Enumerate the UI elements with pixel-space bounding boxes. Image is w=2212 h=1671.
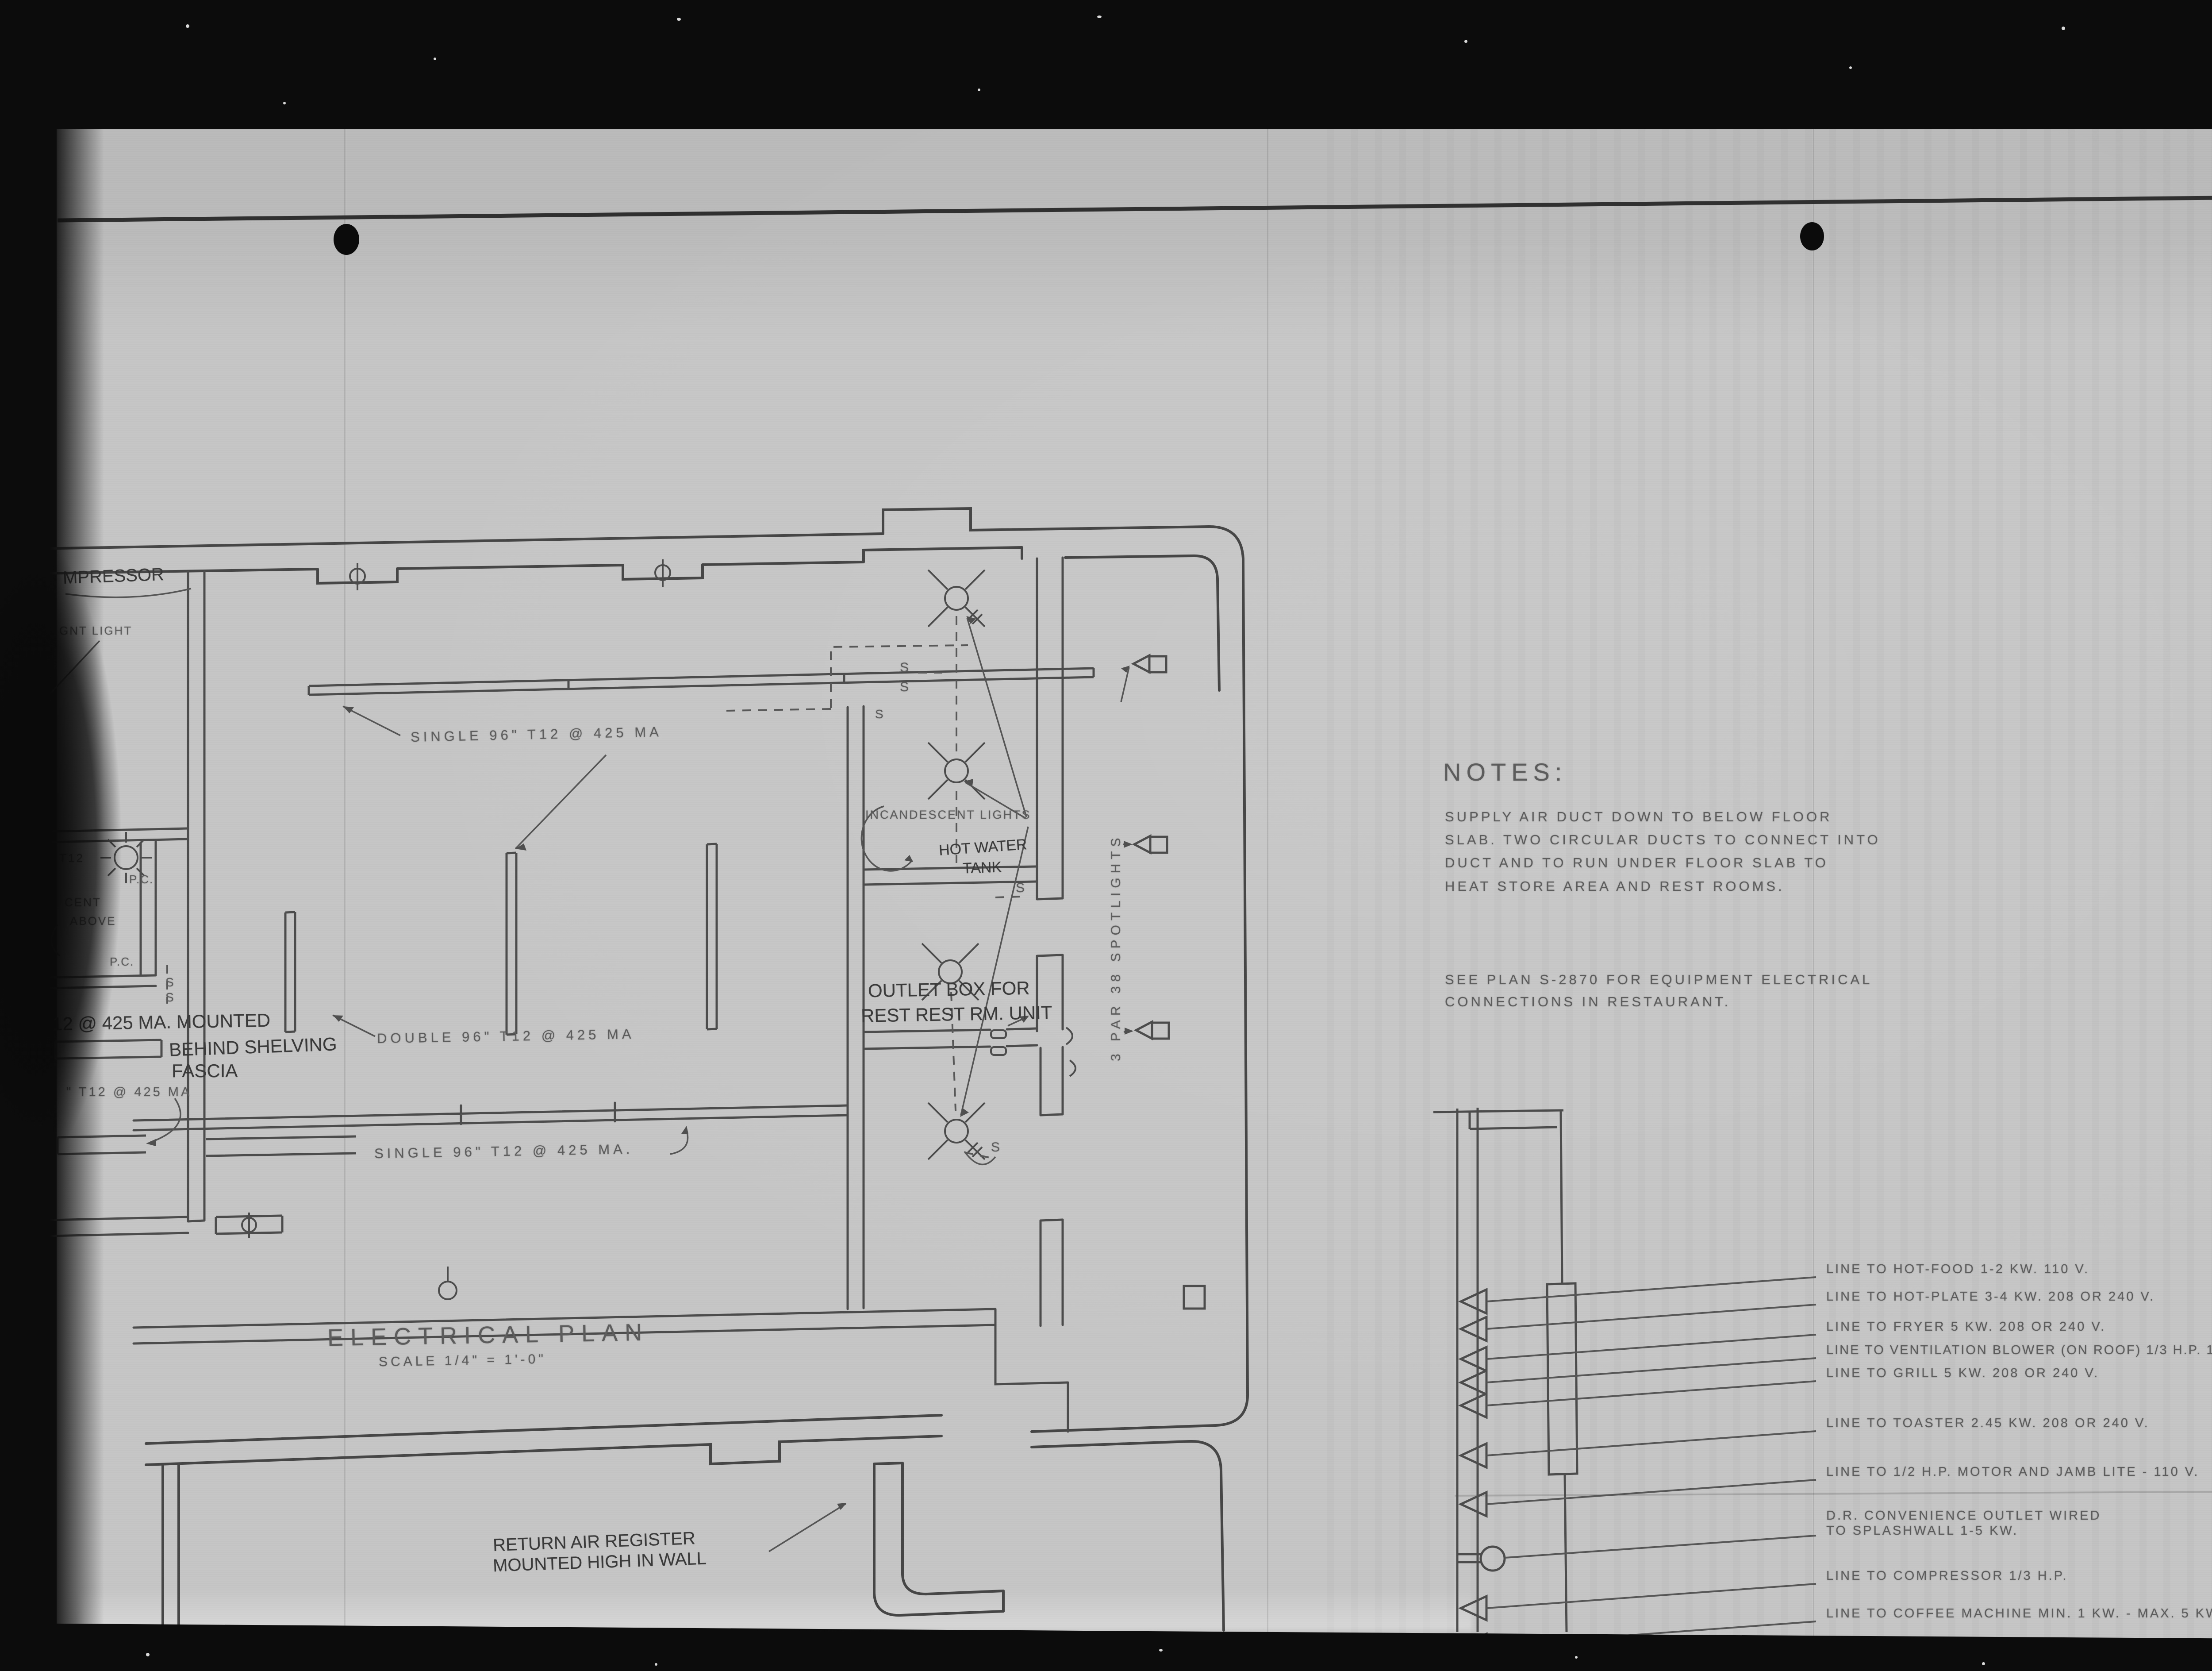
note-line: SEE PLAN S-2870 FOR EQUIPMENT ELECTRICAL [1445, 972, 1872, 988]
circuit-label-coffee: LINE TO COFFEE MACHINE MIN. 1 KW. - MAX.… [1826, 1606, 2212, 1621]
ceiling-outlet-icons [242, 559, 670, 1299]
dust-speck [434, 58, 436, 60]
registration-dot [1800, 222, 1824, 250]
note-line: CONNECTIONS IN RESTAURANT. [1445, 994, 1731, 1010]
plan-scale: SCALE 1/4" = 1'-0" [379, 1352, 547, 1370]
circuit-label-dr-2: TO SPLASHWALL 1-5 KW. [1826, 1524, 2018, 1538]
switch-symbol: S [165, 975, 174, 990]
dust-speck [1982, 1662, 1985, 1665]
dust-speck [1849, 66, 1852, 69]
circuit-label-fryer: LINE TO FRYER 5 KW. 208 OR 240 V. [1826, 1320, 2106, 1334]
dust-speck [1097, 15, 1102, 18]
switch-symbol: S [1016, 881, 1025, 896]
microfilm-scan: ELECTRICAL PLAN SCALE 1/4" = 1'-0" NOTES… [0, 0, 2212, 1671]
film-edge-top [0, 0, 2212, 129]
circuit-label-grill: LINE TO GRILL 5 KW. 208 OR 240 V. [1826, 1366, 2099, 1381]
label-incandescent: INCANDESCENT LIGHTS [865, 808, 1031, 822]
dust-speck [186, 24, 189, 28]
notes-heading: NOTES: [1443, 758, 1567, 786]
dust-speck [655, 1663, 657, 1666]
panel-circuit-lines [1486, 1277, 1816, 1646]
circuit-label-hot-plate: LINE TO HOT-PLATE 3-4 KW. 208 OR 240 V. [1826, 1290, 2155, 1304]
dust-speck [1464, 40, 1467, 43]
outlet-box-icon [1184, 1286, 1205, 1309]
note-outlet-1: OUTLET BOX FOR [868, 978, 1030, 1001]
registration-dot [334, 224, 359, 255]
note-line: HEAT STORE AREA AND REST ROOMS. [1445, 878, 1785, 894]
dust-speck [1159, 1649, 1163, 1652]
film-vignette-left [0, 451, 146, 1248]
building-outline [33, 508, 1248, 1432]
switch-symbol: S [991, 1140, 1000, 1155]
switch-symbol: S [900, 680, 909, 695]
circuit-label-compressor: LINE TO COMPRESSOR 1/3 H.P. [1826, 1569, 2068, 1583]
circuit-label-hot-food: LINE TO HOT-FOOD 1-2 KW. 110 V. [1826, 1262, 2089, 1277]
dust-speck [283, 102, 286, 104]
dust-speck [677, 18, 681, 21]
dust-speck [1575, 1656, 1578, 1659]
circuit-label-vent-blower: LINE TO VENTILATION BLOWER (ON ROOF) 1/3… [1826, 1343, 2212, 1358]
circuit-dashes [167, 616, 1020, 1159]
spotlight-icons [1133, 655, 1169, 1039]
note-line: SLAB. TWO CIRCULAR DUCTS TO CONNECT INTO [1445, 832, 1881, 848]
note-line: SUPPLY AIR DUCT DOWN TO BELOW FLOOR [1445, 809, 1832, 825]
switch-symbol: S [900, 660, 909, 675]
lower-plan [146, 1415, 1224, 1630]
dust-speck [978, 89, 980, 91]
label-spotlights: 3 PAR 38 SPOTLIGHTS [1109, 833, 1124, 1061]
note-mounted-3: FASCIA [172, 1060, 238, 1082]
note-outlet-2: REST REST RM. UNIT [861, 1002, 1052, 1027]
switch-symbol: S [165, 990, 174, 1005]
circuit-label-dr-1: D.R. CONVENIENCE OUTLET WIRED [1826, 1509, 2101, 1523]
star-light-icon [928, 1103, 985, 1159]
circuit-label-motor-jamb: LINE TO 1/2 H.P. MOTOR AND JAMB LITE - 1… [1826, 1465, 2200, 1479]
note-line: DUCT AND TO RUN UNDER FLOOR SLAB TO [1445, 855, 1828, 871]
note-hot-water-2: TANK [962, 859, 1002, 877]
sheet-border [58, 196, 2212, 1625]
switch-symbol: S [875, 707, 883, 721]
circuit-label-toaster: LINE TO TOASTER 2.45 KW. 208 OR 240 V. [1826, 1416, 2150, 1431]
plan-title: ELECTRICAL PLAN [327, 1319, 649, 1352]
dust-speck [2062, 27, 2065, 30]
panel-diagram [1433, 1108, 1577, 1658]
dust-speck [146, 1653, 150, 1656]
